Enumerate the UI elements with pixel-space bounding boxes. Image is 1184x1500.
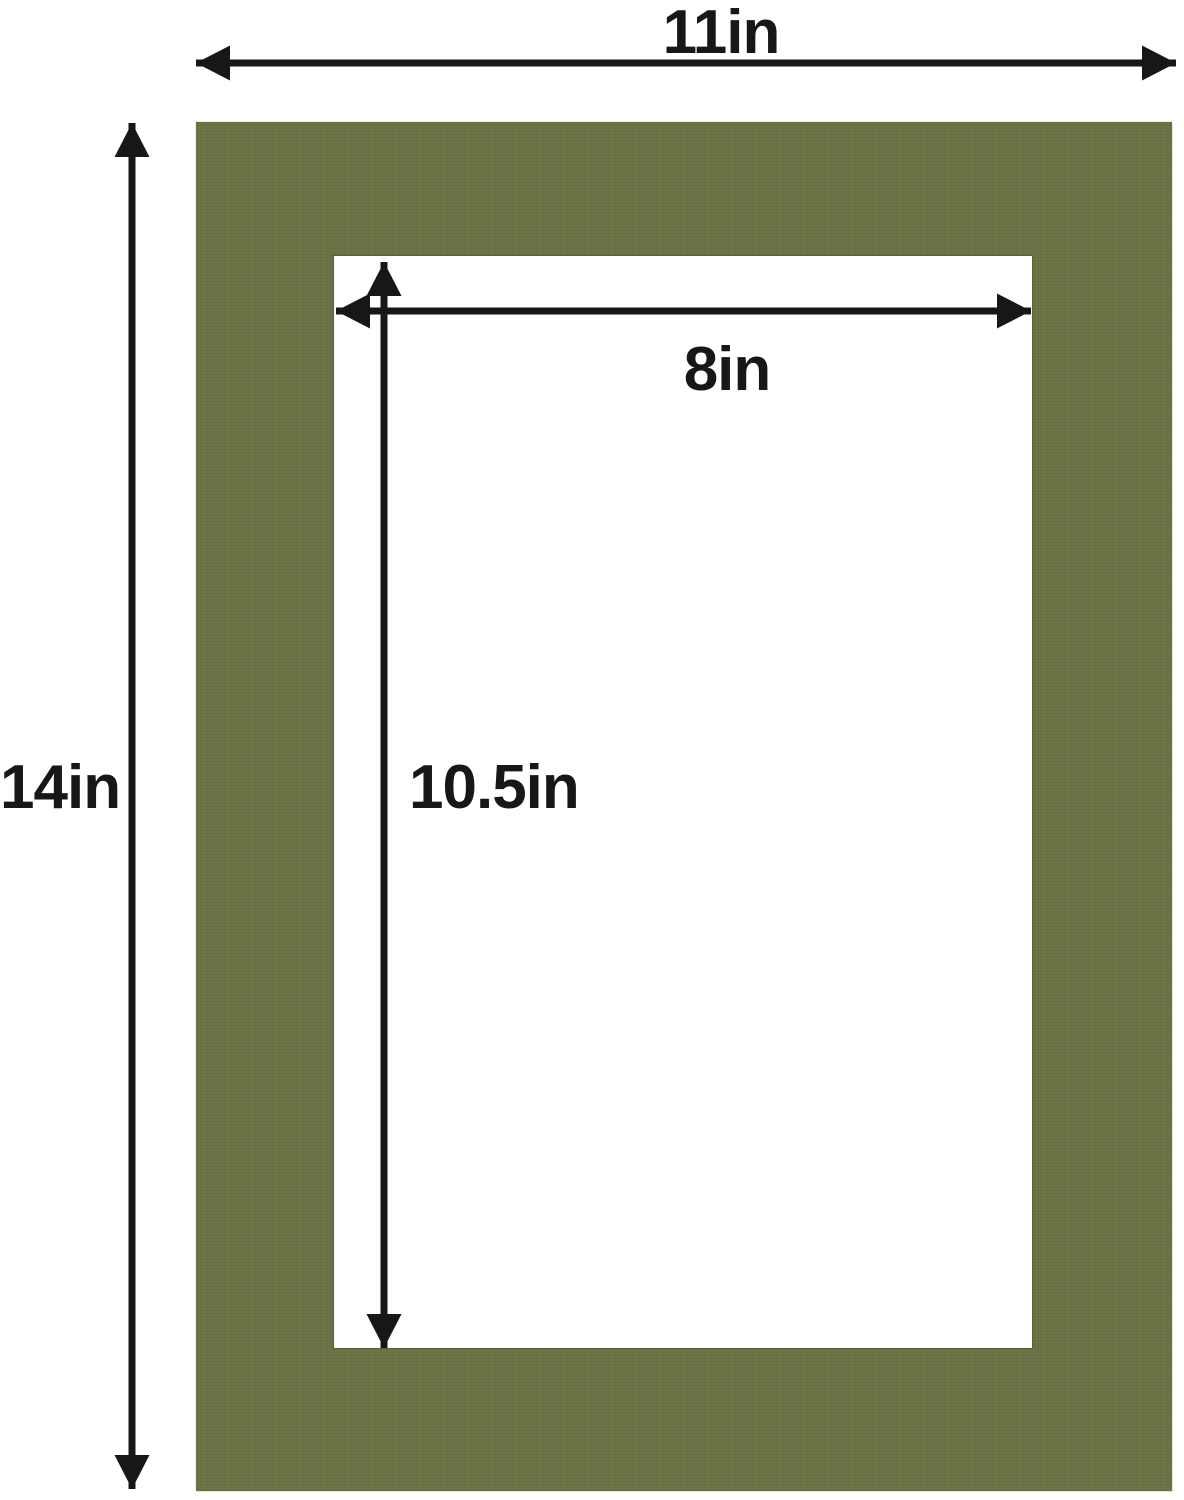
outer-height-label: 14in <box>0 757 114 819</box>
mat-dimension-diagram: 11in 14in 8in 10.5in <box>0 0 1184 1500</box>
outer-width-label: 11in <box>571 2 871 64</box>
opening-width-label: 8in <box>602 339 852 401</box>
opening-height-label: 10.5in <box>409 757 579 819</box>
